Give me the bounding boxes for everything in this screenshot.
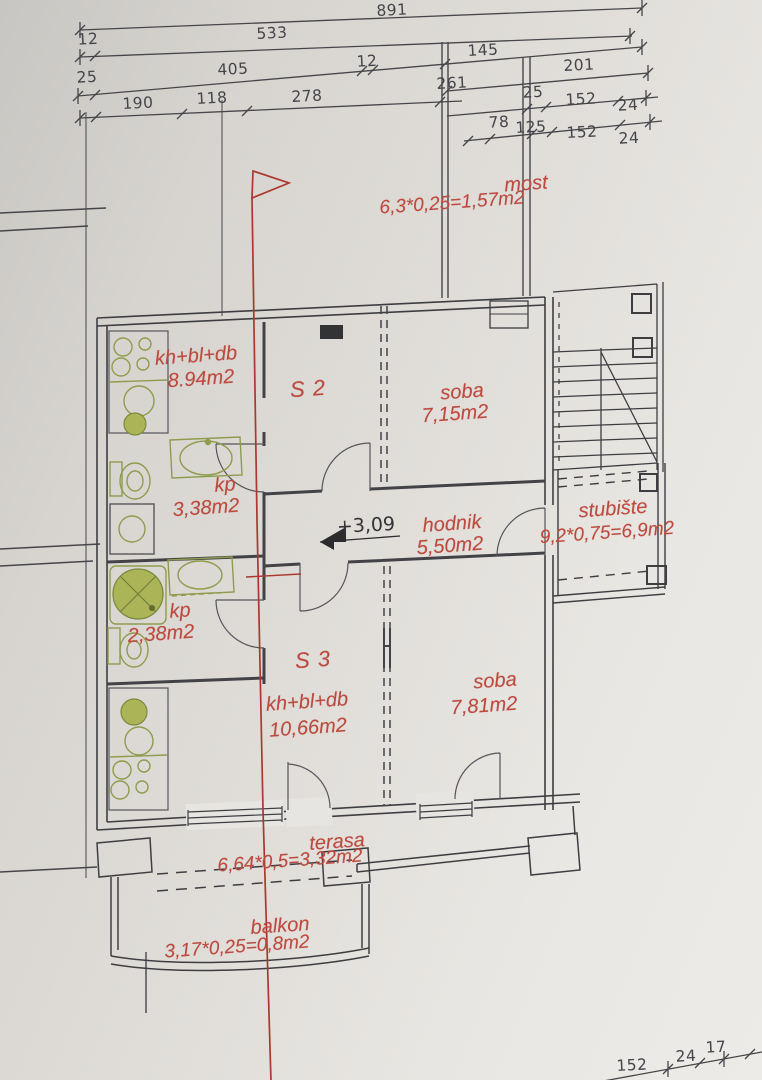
label-bath-lower: kp <box>169 600 191 621</box>
dim-17: 17 <box>705 1040 727 1057</box>
label-hodnik-area: 5,50m2 <box>416 534 484 559</box>
dim-25a: 25 <box>76 70 98 87</box>
dim-533: 533 <box>256 25 288 42</box>
dim-152b: 152 <box>566 124 598 141</box>
label-bath-upper-area: 3,38m2 <box>172 496 240 521</box>
dim-12a: 12 <box>77 32 99 49</box>
label-level: +3,09 <box>336 515 395 537</box>
floorplan-page: 891 12 533 25 405 12 145 201 261 25 152 … <box>0 0 762 1080</box>
dim-190: 190 <box>122 95 154 112</box>
sink-basin <box>121 699 147 725</box>
dim-24c: 24 <box>675 1049 697 1066</box>
dim-405: 405 <box>217 61 249 78</box>
fixtures-kitchen-lower <box>109 688 168 810</box>
dim-25b: 25 <box>522 85 544 102</box>
dim-152a: 152 <box>565 91 597 108</box>
stairs <box>553 282 663 472</box>
chimney-block <box>320 325 343 339</box>
dim-12b: 12 <box>356 54 378 71</box>
dim-201: 201 <box>563 57 595 74</box>
dim-125: 125 <box>515 119 547 136</box>
label-soba-upper: soba <box>440 381 485 404</box>
dim-278: 278 <box>291 88 323 105</box>
label-kitchen-upper-area: 8.94m2 <box>167 367 235 392</box>
label-soba-lower: soba <box>473 670 518 693</box>
dim-24b: 24 <box>618 131 640 148</box>
label-kitchen-lower-area: 10,66m2 <box>268 715 347 740</box>
dim-261: 261 <box>436 75 468 92</box>
dim-78: 78 <box>488 115 510 132</box>
label-soba-lower-area: 7,81m2 <box>450 694 518 719</box>
dim-145: 145 <box>467 42 499 59</box>
sink-basin <box>124 413 146 435</box>
label-soba-upper-area: 7,15m2 <box>421 402 489 427</box>
label-stubiste: stubište <box>578 497 648 522</box>
section-flag <box>252 171 289 198</box>
label-bath-upper: kp <box>214 474 236 495</box>
dim-24a: 24 <box>617 98 639 115</box>
label-unit-s3: S 3 <box>294 648 331 672</box>
label-unit-s2: S 2 <box>289 377 326 401</box>
dim-152c: 152 <box>616 1057 648 1074</box>
dim-891: 891 <box>376 2 408 19</box>
dim-118: 118 <box>196 90 228 107</box>
label-bath-lower-area: 2,38m2 <box>127 622 195 647</box>
